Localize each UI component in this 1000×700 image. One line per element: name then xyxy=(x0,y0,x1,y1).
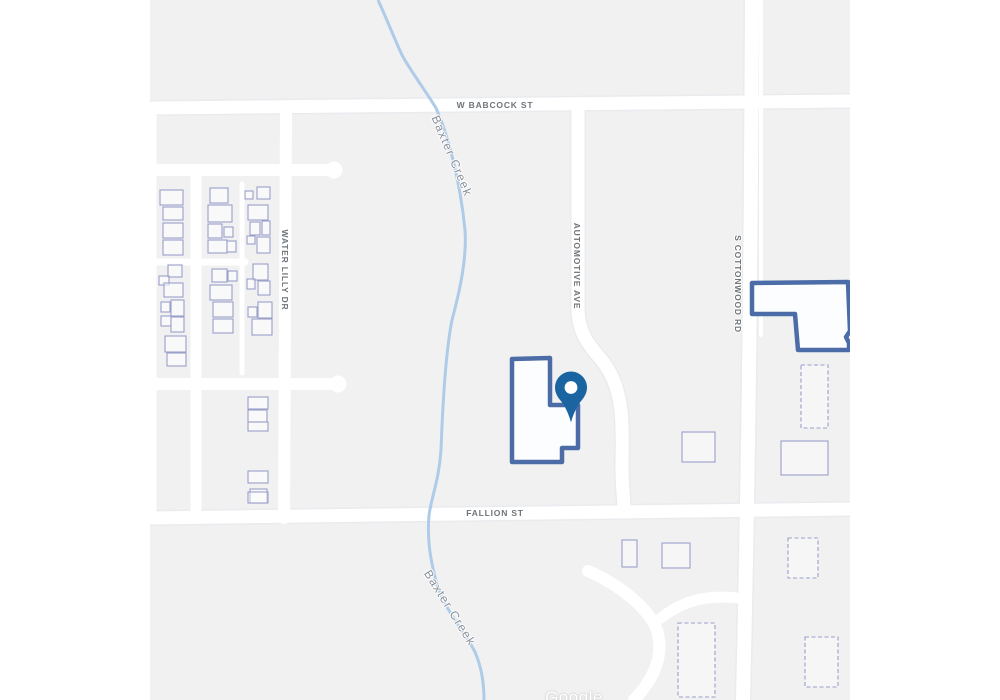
house-footprint xyxy=(245,191,253,199)
house-footprint xyxy=(258,281,270,295)
house-footprint xyxy=(161,302,170,312)
house-footprint xyxy=(247,279,255,289)
house-footprint xyxy=(171,317,184,332)
selected-parcels-layer[interactable] xyxy=(512,282,850,462)
house-footprint xyxy=(247,236,255,244)
house-footprint xyxy=(163,207,183,220)
outbuilding-footprint xyxy=(682,432,715,462)
outbuilding-footprint xyxy=(248,492,268,503)
selected-parcel-building-1[interactable] xyxy=(752,282,850,350)
house-footprint xyxy=(210,188,228,203)
house-footprint xyxy=(248,422,268,431)
outbuilding-footprint xyxy=(678,623,715,697)
house-footprint xyxy=(253,264,268,280)
house-footprint xyxy=(163,240,183,255)
outbuilding-footprint xyxy=(622,540,637,567)
house-footprint xyxy=(168,265,182,277)
street-label-s-cottonwood-rd: S COTTONWOOD RD xyxy=(733,235,743,333)
house-footprint xyxy=(248,410,267,422)
map-canvas[interactable]: W BABCOCK ST FALLION ST WATER LILLY DR A… xyxy=(150,0,850,700)
outbuilding-footprint xyxy=(781,441,828,475)
house-footprint xyxy=(213,302,233,317)
house-footprint xyxy=(257,237,270,253)
house-footprint xyxy=(212,269,227,282)
road-curve-branch xyxy=(661,597,745,618)
house-footprint xyxy=(210,285,232,300)
house-footprint xyxy=(262,221,270,235)
house-footprint xyxy=(213,319,233,333)
map-screenshot: W BABCOCK ST FALLION ST WATER LILLY DR A… xyxy=(0,0,1000,700)
house-footprint xyxy=(248,205,268,220)
road-left-2-bulb xyxy=(330,376,347,393)
outbuilding-footprint xyxy=(801,365,828,428)
google-watermark[interactable]: Google xyxy=(545,688,603,700)
house-footprint xyxy=(160,190,183,205)
house-footprint xyxy=(165,336,186,352)
road-curve-south xyxy=(588,571,659,700)
house-footprint xyxy=(248,471,268,483)
house-footprint xyxy=(224,227,233,237)
street-label-water-lilly-dr: WATER LILLY DR xyxy=(280,230,290,311)
house-footprints-layer xyxy=(159,187,272,503)
street-label-automotive-ave: AUTOMOTIVE AVE xyxy=(572,223,582,310)
house-footprint xyxy=(171,300,184,316)
house-footprint xyxy=(248,397,268,409)
road-water-lilly-dr xyxy=(284,109,286,518)
house-footprint xyxy=(248,307,257,317)
house-footprint xyxy=(227,241,236,252)
house-footprint xyxy=(208,224,222,238)
house-footprint xyxy=(167,353,186,366)
house-footprint xyxy=(164,283,183,297)
house-footprint xyxy=(257,187,270,199)
house-footprint xyxy=(258,302,272,318)
house-footprint xyxy=(252,319,272,335)
outbuilding-footprint xyxy=(662,543,690,568)
house-footprint xyxy=(208,205,232,222)
outbuilding-footprint xyxy=(788,538,818,578)
house-footprint xyxy=(161,316,171,326)
house-footprint xyxy=(163,223,183,238)
street-label-w-babcock-st: W BABCOCK ST xyxy=(457,100,534,110)
street-label-fallion-st: FALLION ST xyxy=(466,508,524,518)
road-left-1-bulb xyxy=(326,162,343,179)
house-footprint xyxy=(228,271,237,281)
house-footprint xyxy=(250,222,260,235)
outbuilding-footprint xyxy=(805,637,838,687)
house-footprint xyxy=(208,240,227,253)
